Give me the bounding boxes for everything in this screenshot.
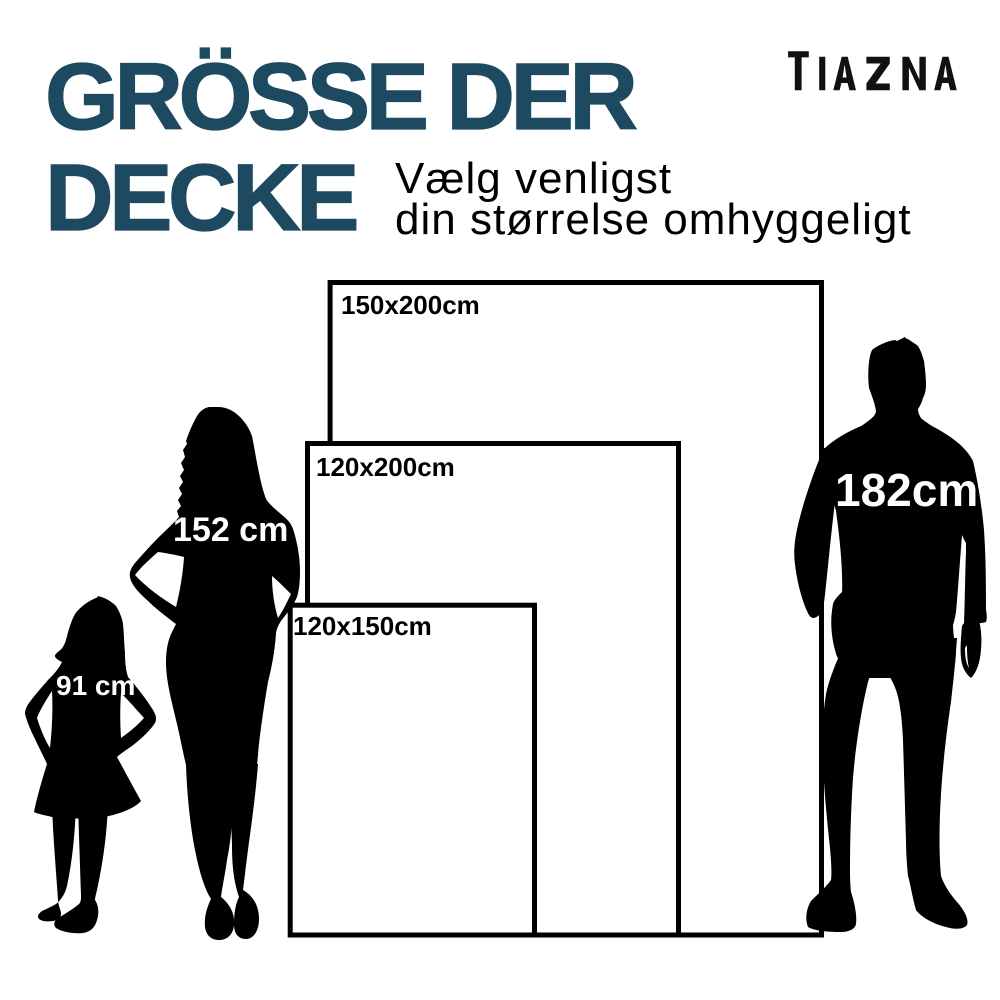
svg-text:91 cm: 91 cm [56,670,135,701]
svg-text:120x200cm: 120x200cm [316,452,455,482]
svg-text:120x150cm: 120x150cm [293,611,432,641]
svg-text:152 cm: 152 cm [173,511,288,549]
svg-text:GRÖSSE DER: GRÖSSE DER [45,44,636,150]
svg-text:150x200cm: 150x200cm [341,290,480,320]
svg-text:DECKE: DECKE [45,145,356,251]
svg-text:din størrelse omhyggeligt: din størrelse omhyggeligt [395,195,912,244]
svg-text:182cm: 182cm [835,464,978,516]
